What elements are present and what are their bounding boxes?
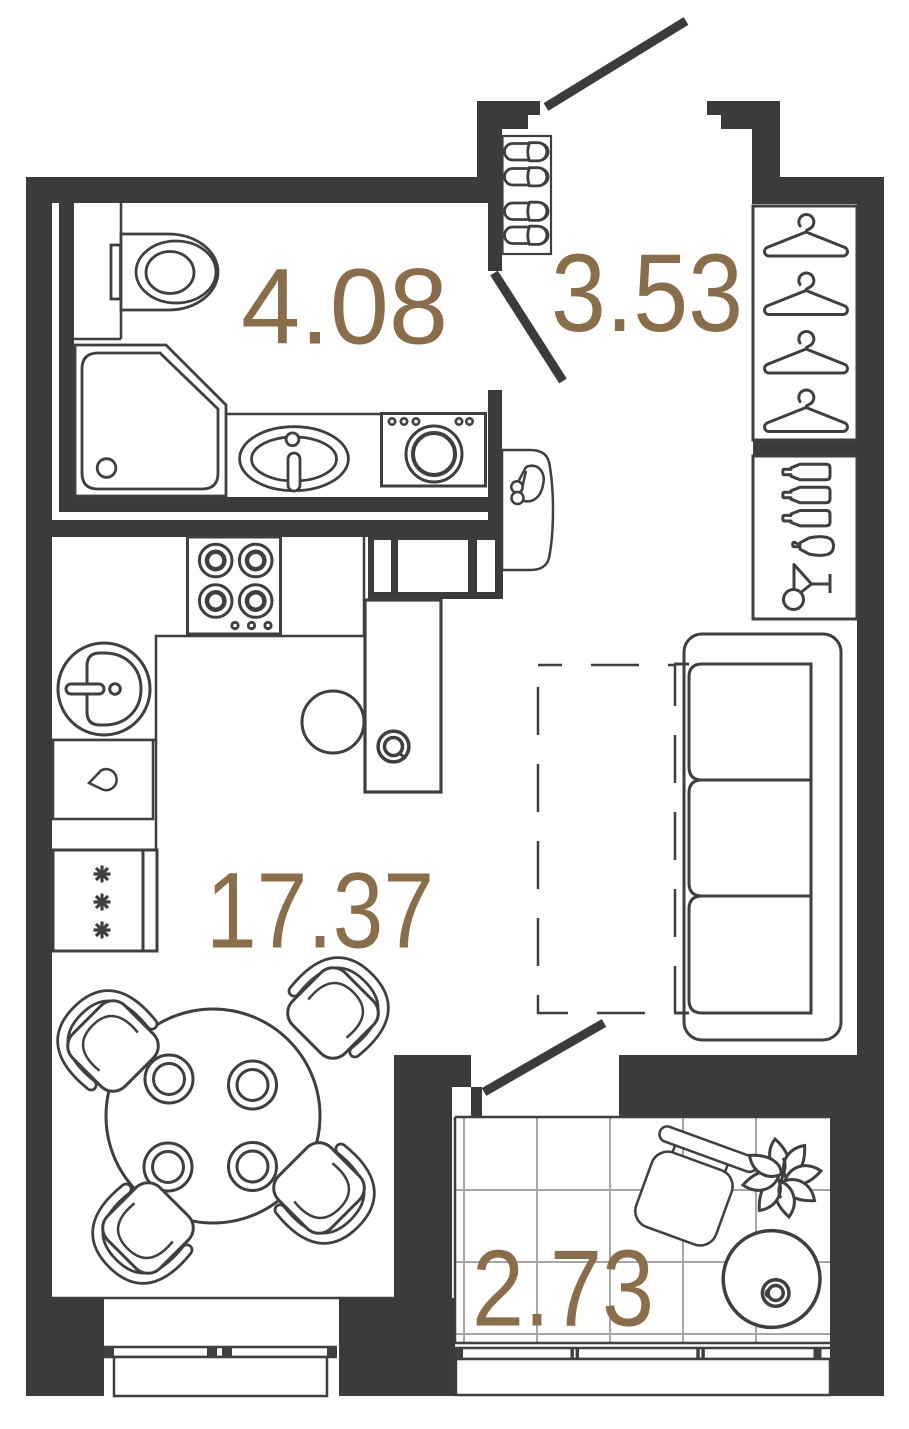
svg-text:2.73: 2.73: [472, 1228, 654, 1350]
svg-text:4.08: 4.08: [241, 246, 448, 367]
svg-text:3.53: 3.53: [551, 232, 743, 355]
svg-text:17.37: 17.37: [206, 850, 434, 971]
